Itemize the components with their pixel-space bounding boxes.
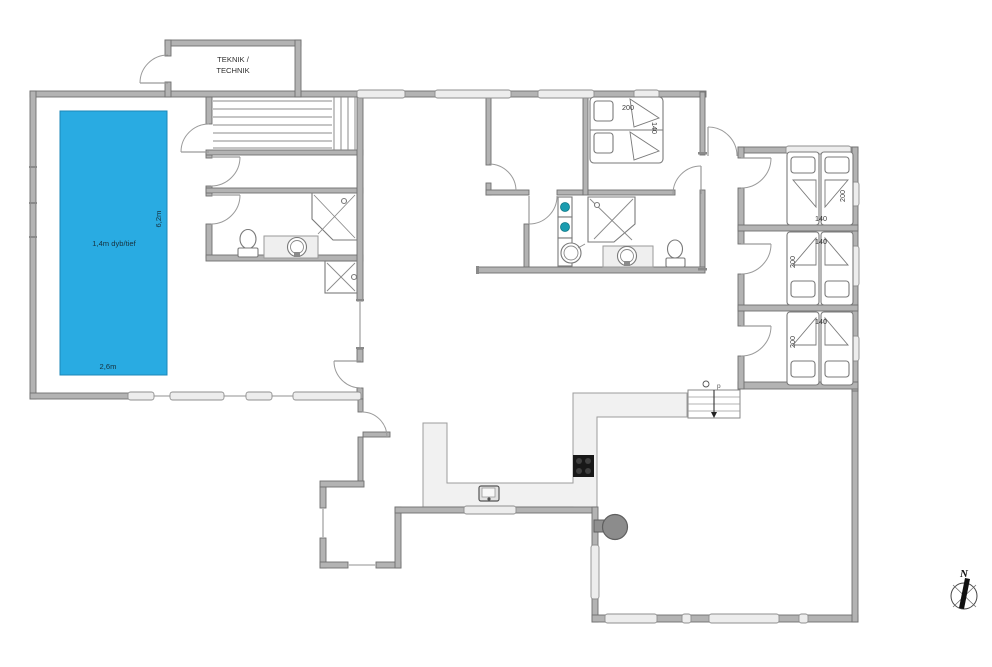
toilet — [240, 230, 256, 249]
door-wing-entry — [708, 127, 737, 156]
door-pool-exit — [334, 361, 361, 388]
door-east-room1 — [741, 158, 771, 188]
tap-icon — [487, 497, 490, 500]
staircase — [688, 381, 740, 418]
east-room2-bed-length: 200 — [788, 256, 797, 268]
stair-mark-letter: p — [717, 383, 721, 390]
tap-icon — [294, 252, 300, 257]
pool-depth-label: 1,4m dyb/tief — [92, 239, 136, 248]
door-east-room3 — [741, 326, 771, 356]
compass-north-label: N — [959, 568, 969, 580]
double-bed-length: 200 — [622, 103, 634, 112]
floor-plan-drawing: N TEKNIK / TECHNIK 1,4m dyb/tief 6,2m 2,… — [0, 0, 992, 667]
toilet — [668, 240, 683, 258]
compass: N — [951, 568, 977, 609]
cooktop — [573, 455, 594, 477]
door-room-b — [673, 166, 701, 194]
dryer-drum-icon — [561, 223, 570, 232]
windows — [128, 90, 859, 623]
shower-head-icon — [352, 275, 357, 280]
door-east-room2 — [741, 244, 771, 274]
stair-mark-circle-icon — [703, 381, 709, 387]
teknik-label-line2: TECHNIK — [216, 66, 249, 75]
kitchen-counter — [423, 393, 687, 510]
pool-bathroom — [238, 193, 357, 258]
east-room2-bed-width: 140 — [815, 237, 827, 246]
pool-width-label: 2,6m — [100, 362, 117, 371]
north-needle-icon — [959, 578, 970, 609]
pool-length-label: 6,2m — [154, 211, 163, 228]
east-room1-bed-width: 140 — [815, 214, 827, 223]
double-bed-width: 140 — [650, 122, 659, 134]
wood-stove — [594, 515, 628, 540]
door-teknik — [140, 55, 168, 83]
middle-bathroom — [558, 197, 685, 267]
pool-shower-cabin — [325, 261, 357, 293]
door-sauna — [181, 124, 209, 152]
floor-plan-page: N TEKNIK / TECHNIK 1,4m dyb/tief 6,2m 2,… — [0, 0, 992, 667]
east-room3-bed-length: 200 — [788, 336, 797, 348]
tap-icon — [624, 261, 630, 266]
washer-drum-icon — [561, 203, 570, 212]
door-room-a — [489, 164, 516, 191]
teknik-label-line1: TEKNIK / — [217, 55, 250, 64]
door-pool-bath — [211, 195, 240, 224]
shower-head-icon — [342, 199, 347, 204]
shower-head-icon — [595, 203, 600, 208]
east-room1-bed-length: 200 — [838, 190, 847, 202]
door-pool-corridor — [211, 157, 240, 186]
sauna-benches — [213, 97, 355, 150]
east-room3-bed-width: 140 — [815, 317, 827, 326]
door-mid-bath — [529, 196, 557, 224]
